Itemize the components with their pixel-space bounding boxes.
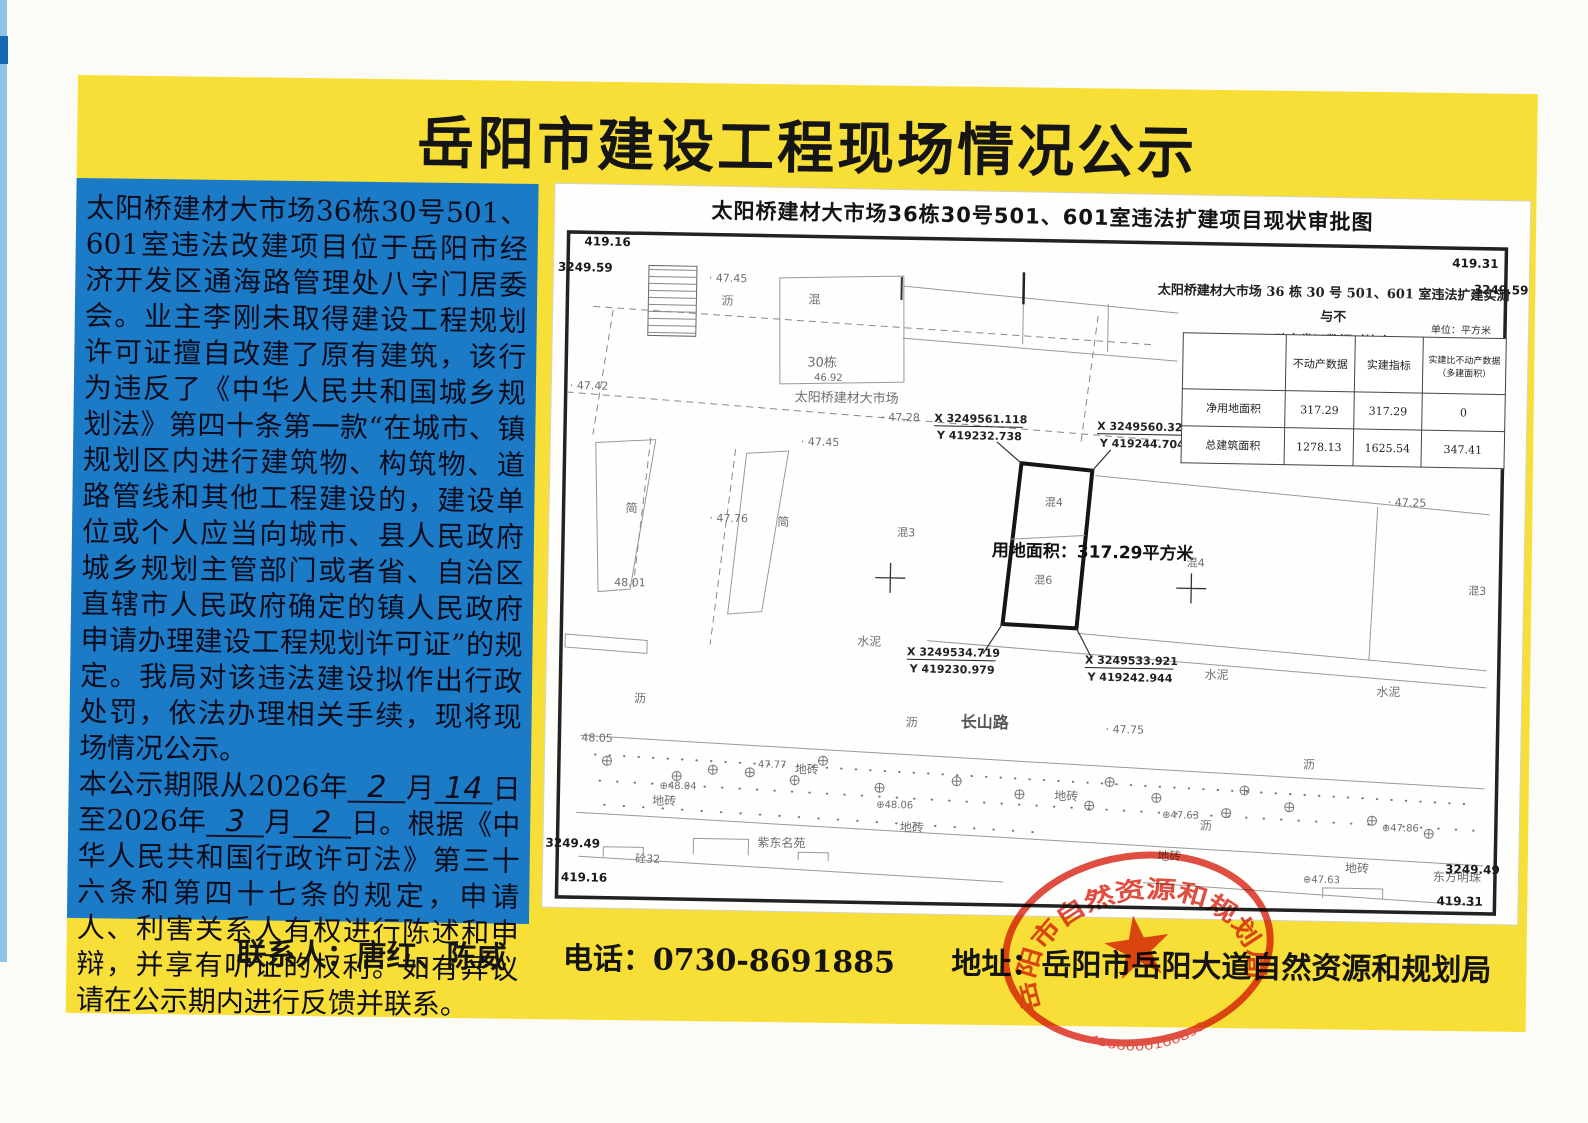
- grid-coord-bottom-right-y: 419.31: [1436, 894, 1483, 909]
- grid-coord-top-left-y: 419.16: [584, 234, 631, 249]
- grid-coord-bottom-left-y: 419.16: [561, 870, 608, 885]
- manhole-mark: [1015, 790, 1024, 799]
- parcel-divider: [1011, 534, 1085, 540]
- map-label: X 3249560.321: [1097, 420, 1190, 435]
- notice-period-suffix: 日。根据《中华人民共和国行政许可法》第三十六条和第四十七条的规定，申请人、利害关…: [76, 807, 521, 1022]
- map-label: ⊕48.04: [659, 781, 696, 793]
- header-difference: 实建比不动产数据（多建面积）: [1422, 337, 1506, 395]
- map-label: 用地面积：317.29平方米: [992, 540, 1195, 565]
- map-label: 简: [625, 501, 637, 515]
- manhole-mark: [1152, 793, 1161, 802]
- survey-map-sheet: 太阳桥建材大市场36栋30号501、601室违法扩建项目现状审批图: [542, 184, 1530, 925]
- map-label: 长山路: [961, 712, 1010, 732]
- table-row: 总建筑面积 1278.13 1625.54 347.41: [1181, 426, 1505, 469]
- scan-edge-notch: [0, 36, 8, 64]
- map-label: 简: [777, 515, 789, 529]
- map-label: 地砖: [900, 819, 924, 834]
- map-label: 沥: [721, 294, 733, 308]
- manhole-mark: [875, 783, 884, 792]
- map-label: Y 419230.979: [909, 662, 995, 677]
- map-label: · 47.75: [1105, 723, 1144, 737]
- row-land-area-diff: 0: [1422, 393, 1506, 431]
- manhole-mark: [1424, 829, 1433, 838]
- map-label: Y 419242.944: [1086, 671, 1172, 686]
- map-label: 47.77: [758, 760, 787, 772]
- manhole-mark: [790, 776, 799, 785]
- map-label: 混6: [1034, 574, 1052, 587]
- row-land-area-cert: 317.29: [1285, 391, 1355, 429]
- map-label: 地砖: [652, 793, 676, 808]
- manhole-mark: [602, 756, 611, 765]
- scan-edge-artifact: [0, 0, 7, 962]
- scanned-notice-page: { "title": "岳阳市建设工程现场情况公示", "notice": { …: [0, 0, 1588, 1123]
- row-floor-area-built: 1625.54: [1353, 429, 1422, 467]
- map-label: 混3: [1468, 585, 1486, 598]
- notice-paragraph-2: 本公示期限从2026年2月14日至2026年3月2日。根据《中华人民共和国行政许…: [76, 766, 521, 1024]
- map-label: 48.05: [581, 731, 613, 745]
- contact-phone: 电话：0730-8691885: [563, 941, 896, 980]
- header-built-data: 实建指标: [1354, 336, 1423, 394]
- handwritten-month-to: 3: [206, 809, 264, 838]
- manhole-mark: [672, 771, 681, 780]
- map-label: 地砖: [795, 761, 819, 776]
- map-label: 混4: [1187, 556, 1205, 569]
- map-label: 紫东名苑: [757, 835, 805, 851]
- handwritten-day-from: 14: [434, 776, 492, 805]
- manhole-mark: [1285, 803, 1294, 812]
- map-label: 混3: [897, 526, 915, 539]
- manhole-mark: [708, 765, 717, 774]
- stairs-hatch: [648, 265, 697, 336]
- map-label: · 47.42: [570, 379, 609, 393]
- manhole-mark: [1105, 777, 1114, 786]
- map-label: X 3249561.118: [934, 412, 1027, 427]
- map-label: 48.01: [614, 576, 646, 590]
- map-label: 水泥: [1205, 668, 1229, 682]
- manhole-mark: [1367, 816, 1376, 825]
- map-label: ⊕47.63: [1303, 875, 1340, 887]
- notice-poster: 岳阳市建设工程现场情况公示 太阳桥建材大市场36栋30号501、601室违法改建…: [66, 75, 1538, 1032]
- grid-coord-top-right-x: 3249.59: [1474, 283, 1529, 298]
- manhole-mark: [1240, 786, 1249, 795]
- page-title: 岳阳市建设工程现场情况公示: [77, 93, 1538, 194]
- header-blank: [1182, 333, 1286, 391]
- map-label: 太阳桥建材大市场: [795, 389, 899, 407]
- map-label: 水泥: [1376, 685, 1400, 699]
- map-label: X 3249533.921: [1085, 653, 1178, 668]
- map-label: Y 419244.704: [1099, 437, 1185, 452]
- manhole-mark: [818, 756, 827, 765]
- manhole-mark: [952, 777, 961, 786]
- map-label: 混4: [1045, 496, 1063, 509]
- grid-coord-bottom-right-x: 3249.49: [1445, 862, 1500, 877]
- map-label: 地砖: [1054, 788, 1078, 803]
- grid-coord-top-right-y: 419.31: [1452, 256, 1499, 271]
- manhole-mark: [1085, 801, 1094, 810]
- map-label: 水泥: [857, 634, 881, 648]
- map-label: 沥: [1303, 758, 1315, 772]
- map-label: 地砖: [1345, 860, 1369, 875]
- row-land-area-label: 净用地面积: [1182, 389, 1286, 428]
- header-cert-data: 不动产数据: [1285, 335, 1355, 393]
- road-dot-rows: [594, 755, 1475, 841]
- map-label: 46.92: [814, 372, 843, 384]
- map-label: X 3249534.719: [907, 645, 1000, 660]
- map-label: 混: [808, 292, 820, 306]
- map-label: · 47.76: [709, 512, 748, 526]
- row-floor-area-diff: 347.41: [1421, 430, 1505, 468]
- map-label: · 47.25: [1388, 496, 1427, 510]
- map-label: 30栋: [807, 354, 837, 371]
- notice-month-label-2: 月: [264, 806, 293, 839]
- contact-person: 联系人：唐红、陈威: [236, 937, 506, 976]
- manhole-mark: [745, 768, 754, 777]
- map-label: 沥: [906, 715, 918, 729]
- notice-period-prefix: 本公示期限从2026年: [79, 767, 349, 804]
- notice-paragraph-1: 太阳桥建材大市场36栋30号501、601室违法改建项目位于岳阳市经济开发区通海…: [79, 190, 529, 772]
- notice-month-label: 月: [406, 771, 435, 804]
- row-land-area-built: 317.29: [1354, 392, 1423, 430]
- map-label: Y 419232.738: [936, 429, 1022, 444]
- handwritten-month-from: 2: [348, 775, 406, 804]
- map-label: 砼32: [635, 852, 660, 865]
- comparison-table: 不动产数据 实建指标 实建比不动产数据（多建面积） 净用地面积 317.29 3…: [1181, 332, 1507, 469]
- map-label: · 47.45: [709, 272, 748, 286]
- notice-text-panel: 太阳桥建材大市场36栋30号501、601室违法改建项目位于岳阳市经济开发区通海…: [67, 178, 539, 924]
- grid-coord-bottom-left-x: 3249.49: [545, 836, 600, 851]
- table-header-row: 不动产数据 实建指标 实建比不动产数据（多建面积）: [1182, 333, 1506, 395]
- official-red-seal: 岳阳市自然资源和规划局 4306000100893: [961, 797, 1316, 1110]
- table-row: 净用地面积 317.29 317.29 0: [1182, 389, 1506, 432]
- map-label: ⊕47.86: [1382, 823, 1419, 835]
- row-floor-area-cert: 1278.13: [1284, 428, 1354, 466]
- map-label: · 47.45: [801, 435, 840, 449]
- seal-star-icon: [1101, 911, 1174, 981]
- map-label: · 47.28: [881, 411, 920, 425]
- grid-coord-top-left-x: 3249.59: [558, 260, 613, 275]
- map-label: 沥: [634, 691, 646, 705]
- handwritten-day-to: 2: [293, 810, 351, 839]
- map-label: ⊕48.06: [876, 800, 913, 812]
- row-floor-area-label: 总建筑面积: [1181, 426, 1285, 465]
